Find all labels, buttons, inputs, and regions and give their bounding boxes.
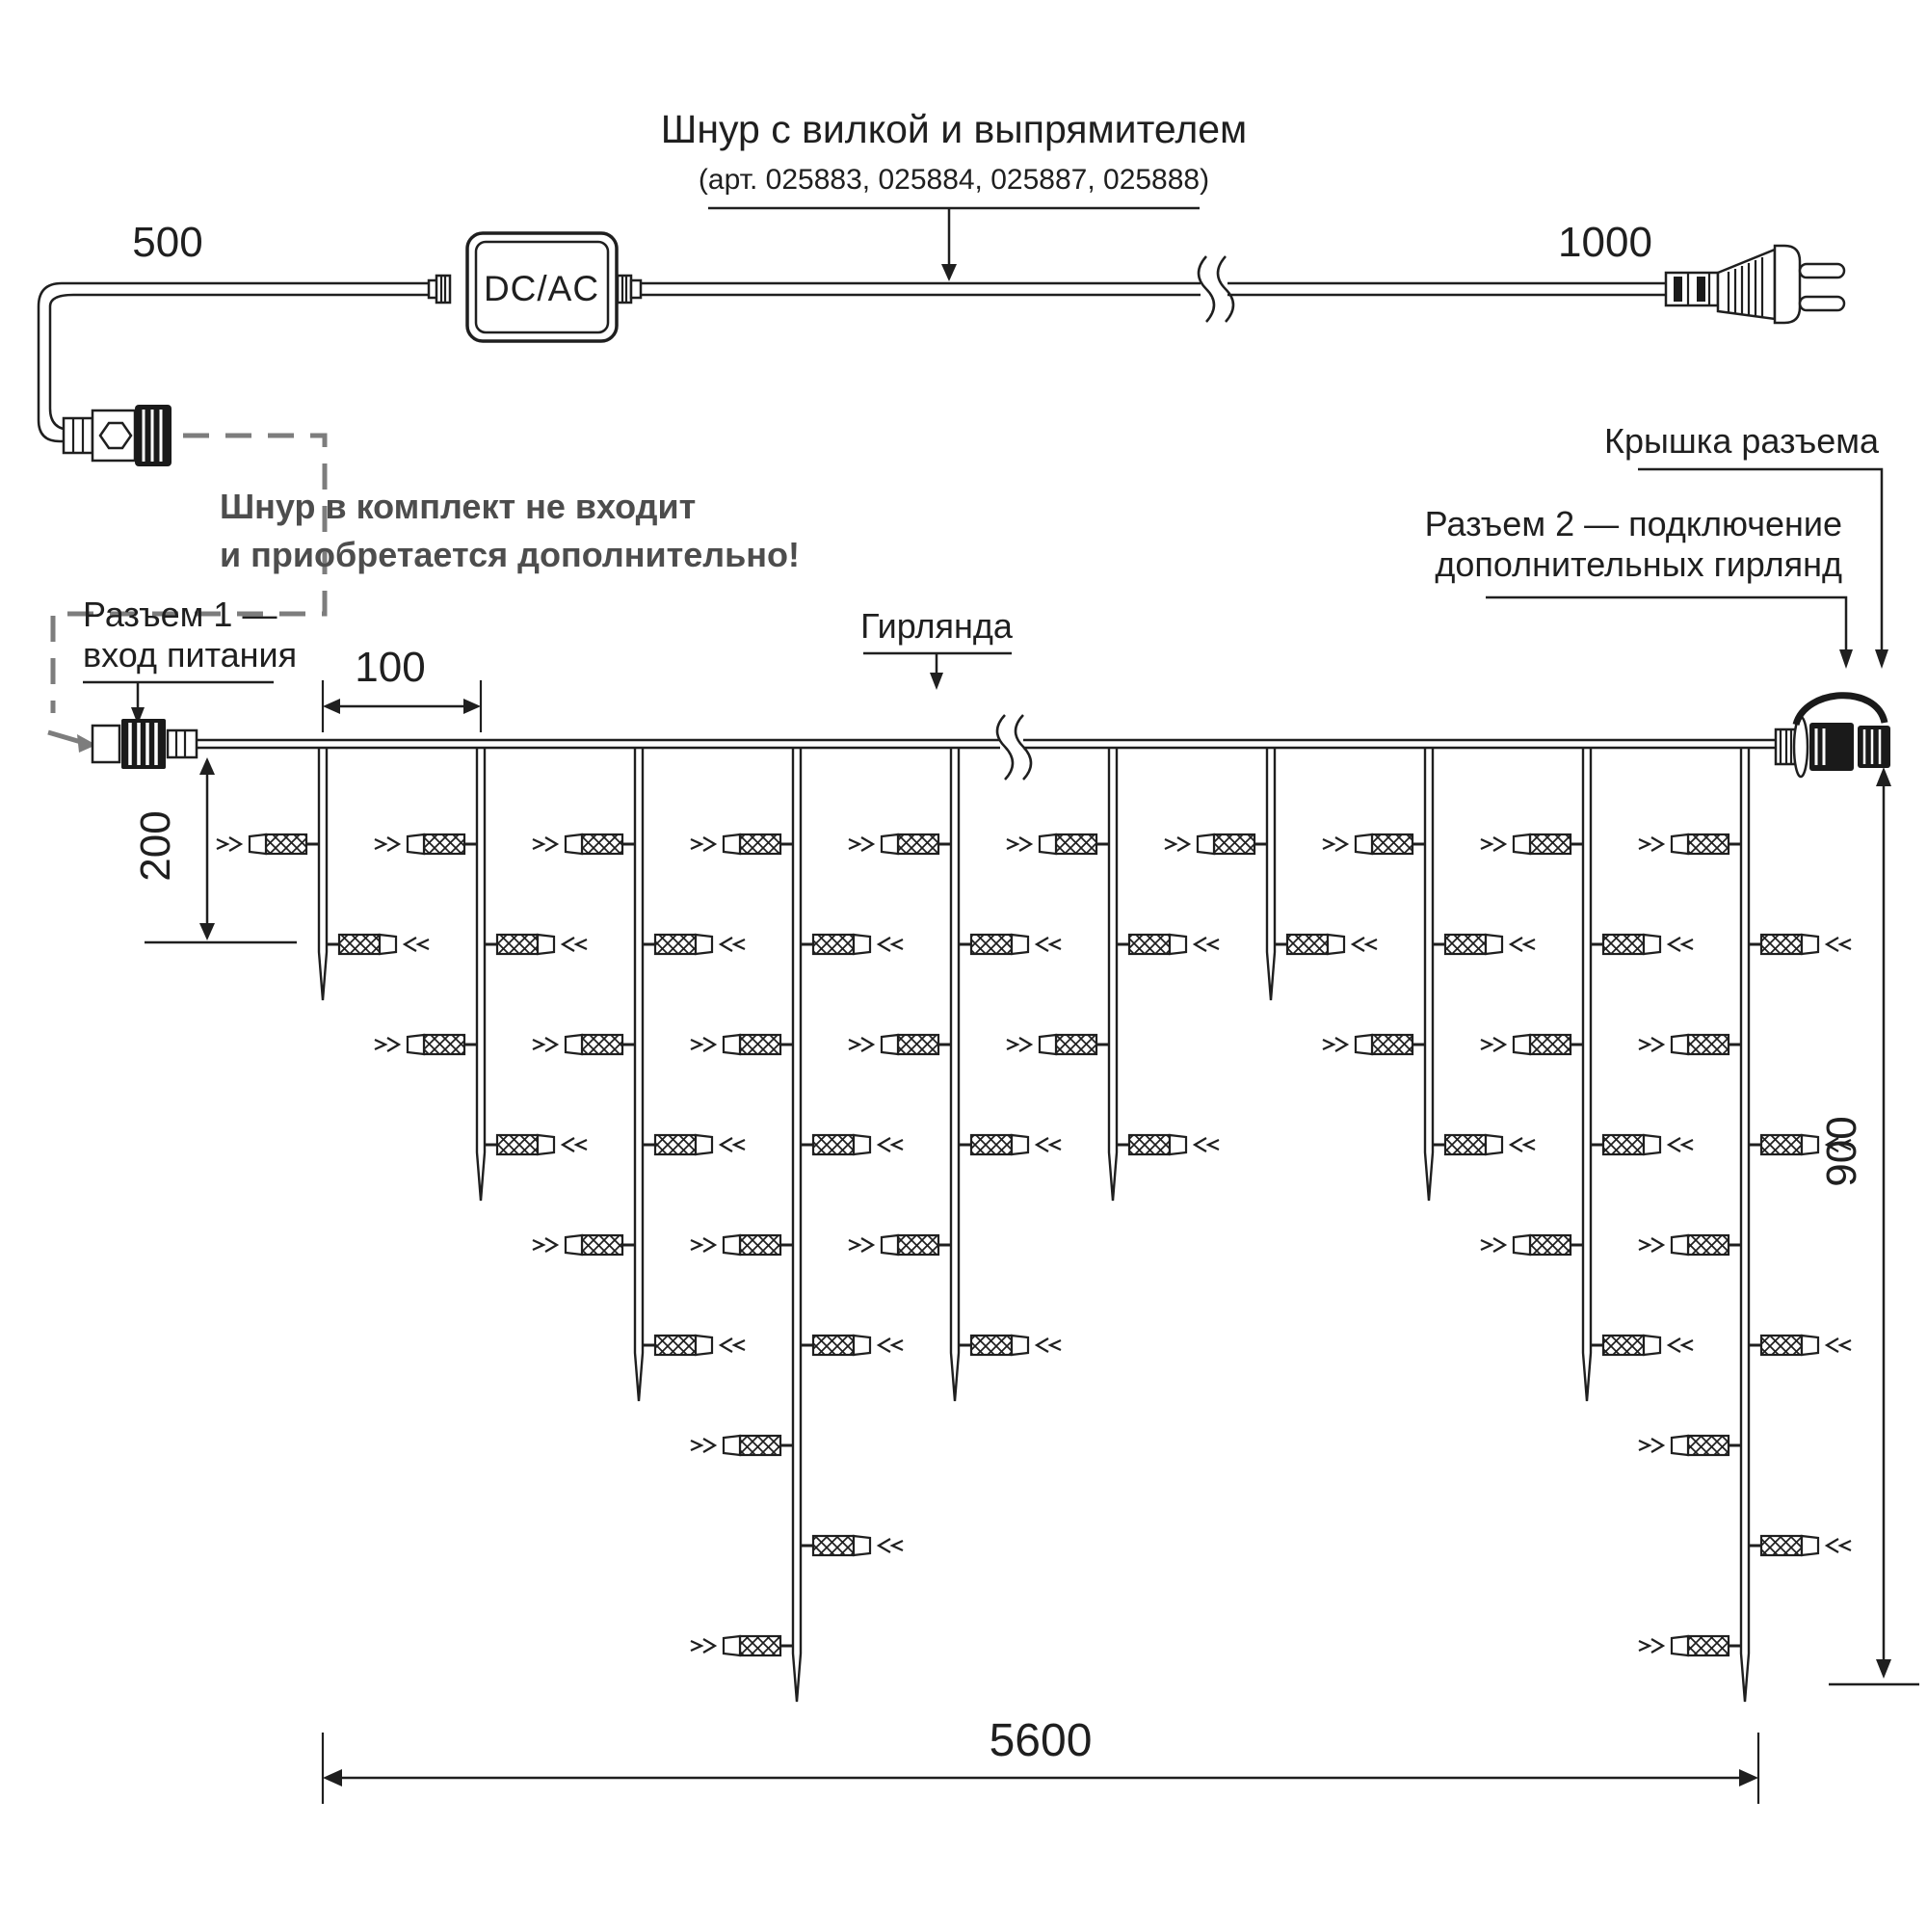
led-bulb-icon (1007, 834, 1109, 854)
cord-break-icon (1199, 256, 1233, 322)
garland-callout: Гирлянда (860, 606, 1014, 690)
connector2-label-line1: Разъем 2 — подключение (1425, 504, 1842, 543)
led-bulb-icon (959, 1135, 1061, 1154)
led-bulb-icon (217, 834, 319, 854)
cord-right-1 (641, 283, 1201, 295)
dim-900: 900 (1818, 1116, 1865, 1186)
led-bulb-icon (691, 1636, 793, 1655)
title-articles: (арт. 025883, 025884, 025887, 025888) (699, 164, 1209, 196)
led-bulb-icon (849, 1235, 951, 1255)
led-bulb-icon (1591, 1336, 1693, 1355)
led-bulb-icon (801, 935, 903, 954)
garland-drop (691, 748, 903, 1702)
led-bulb-icon (643, 1336, 745, 1355)
led-bulb-icon (1591, 935, 1693, 954)
dim-100-arrow-right-icon (463, 699, 481, 714)
led-bulb-icon (1639, 834, 1741, 854)
dim-5600-block: 5600 (323, 1715, 1758, 1804)
led-bulb-icon (1749, 1336, 1851, 1355)
led-bulb-icon (691, 1035, 793, 1054)
connector1-label-line1: Разъем 1 — (83, 595, 277, 634)
led-bulb-icon (801, 1536, 903, 1555)
garland-drop (375, 748, 587, 1201)
led-bulb-icon (327, 935, 429, 954)
dim-200-arrow-bottom-icon (199, 923, 215, 940)
led-bulb-icon (1323, 1035, 1425, 1054)
dim-5600: 5600 (990, 1715, 1093, 1766)
led-bulb-icon (801, 1135, 903, 1154)
dim-200-arrow-top-icon (199, 757, 215, 775)
led-bulb-icon (1165, 834, 1267, 854)
dim-500: 500 (132, 219, 202, 266)
led-bulb-icon (1591, 1135, 1693, 1154)
dim-5600-arrow-left-icon (323, 1769, 342, 1786)
led-bulb-icon (691, 1235, 793, 1255)
connector2-icon (1776, 696, 1890, 777)
connector2-arrow-icon (1839, 649, 1853, 669)
garland-arrow-icon (930, 673, 943, 690)
led-bulb-icon (1749, 1536, 1851, 1555)
connector2-leader-line (1486, 597, 1846, 651)
dim-900-block: 900 (1818, 767, 1919, 1684)
led-bulb-icon (1433, 935, 1535, 954)
note-line2: и приобретается дополнительно! (220, 535, 800, 574)
led-bulb-icon (1007, 1035, 1109, 1054)
cord-right-2 (1227, 283, 1668, 295)
led-bulb-icon (801, 1336, 903, 1355)
led-bulb-icon (1639, 1636, 1741, 1655)
led-bulb-icon (1749, 935, 1851, 954)
dim-900-arrow-top-icon (1876, 767, 1891, 786)
connector2-label-line2: дополнительных гирлянд (1435, 544, 1842, 584)
led-bulb-icon (1481, 834, 1583, 854)
garland-drops (217, 748, 1851, 1702)
dim-5600-arrow-right-icon (1739, 1769, 1758, 1786)
dim-100-arrow-left-icon (323, 699, 340, 714)
connector1-label-line2: вход питания (83, 635, 297, 675)
led-bulb-icon (1117, 1135, 1219, 1154)
dim-100-block: 100 (323, 644, 481, 732)
led-bulb-icon (959, 1336, 1061, 1355)
led-bulb-icon (375, 1035, 477, 1054)
led-bulb-icon (1117, 935, 1219, 954)
led-bulb-icon (485, 935, 587, 954)
dashed-arrow-line (48, 732, 81, 742)
led-bulb-icon (533, 834, 635, 854)
garland-assembly (92, 696, 1890, 1702)
led-bulb-icon (1433, 1135, 1535, 1154)
led-bulb-icon (849, 1035, 951, 1054)
title-block: Шнур с вилкой и выпрямителем (арт. 02588… (661, 107, 1248, 281)
garland-drop (1323, 748, 1535, 1201)
garland-drop (217, 748, 429, 1000)
led-bulb-icon (691, 834, 793, 854)
power-cord-assembly: 500 1000 DC/AC (39, 219, 1844, 466)
led-bulb-icon (533, 1235, 635, 1255)
dcac-label: DC/AC (484, 269, 599, 308)
led-bulb-icon (1639, 1436, 1741, 1455)
led-bulb-icon (1639, 1235, 1741, 1255)
title-arrow-icon (941, 264, 957, 281)
led-bulb-icon (691, 1436, 793, 1455)
garland-diagram: Шнур с вилкой и выпрямителем (арт. 02588… (0, 0, 1927, 1927)
led-bulb-icon (959, 935, 1061, 954)
dcac-converter: DC/AC (429, 233, 641, 341)
garland-drop (1639, 748, 1851, 1702)
led-bulb-icon (1481, 1235, 1583, 1255)
input-connector-icon (92, 719, 197, 769)
led-bulb-icon (1481, 1035, 1583, 1054)
connector2-callout: Разъем 2 — подключение дополнительных ги… (1425, 504, 1853, 669)
dim-200: 200 (132, 810, 179, 881)
cap-arrow-icon (1875, 649, 1888, 669)
garland-drop (1007, 748, 1219, 1201)
cap-label: Крышка разъема (1604, 421, 1880, 461)
cord-connector-icon (64, 405, 172, 466)
garland-label: Гирлянда (860, 606, 1014, 646)
led-bulb-icon (1323, 834, 1425, 854)
note-line1: Шнур в комплект не входит (220, 487, 696, 526)
dim-1000: 1000 (1558, 219, 1652, 266)
led-bulb-icon (849, 834, 951, 854)
title-text: Шнур с вилкой и выпрямителем (661, 107, 1248, 151)
dim-100: 100 (355, 644, 425, 691)
led-bulb-icon (1639, 1035, 1741, 1054)
led-bulb-icon (375, 834, 477, 854)
connector1-callout: Разъем 1 — вход питания (83, 595, 297, 725)
led-bulb-icon (485, 1135, 587, 1154)
dim-900-arrow-bottom-icon (1876, 1659, 1891, 1679)
led-bulb-icon (533, 1035, 635, 1054)
plug-icon (1666, 246, 1844, 323)
garland-wire-left (197, 740, 1000, 748)
cap-strap-icon (1796, 696, 1885, 725)
garland-wire-right (1023, 740, 1776, 748)
led-bulb-icon (1275, 935, 1377, 954)
led-bulb-icon (643, 1135, 745, 1154)
diagram-page: Шнур с вилкой и выпрямителем (арт. 02588… (0, 0, 1927, 1927)
led-bulb-icon (643, 935, 745, 954)
garland-drop (1165, 748, 1377, 1000)
